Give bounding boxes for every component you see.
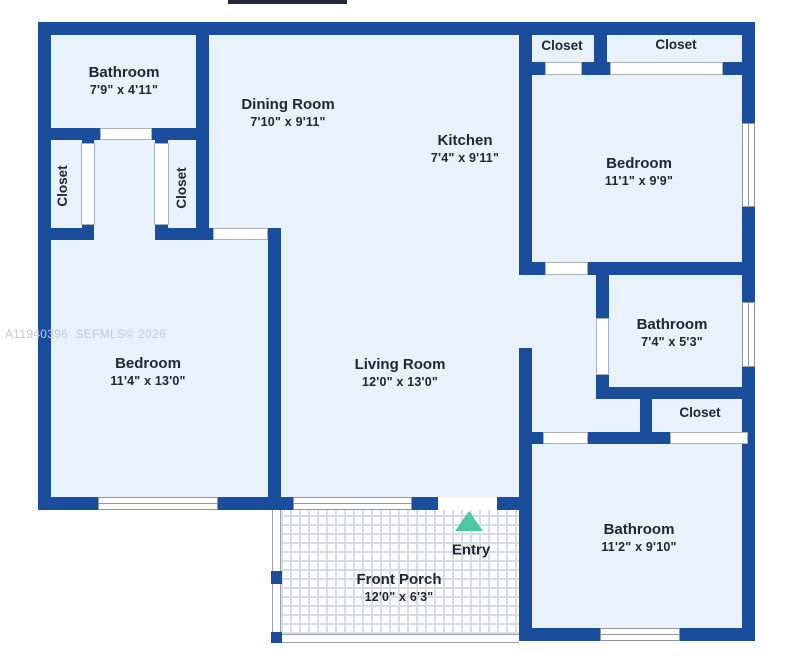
room-label-closet-top-small: Closet [541,38,582,54]
room-label-dining-room: Dining Room 7'10" x 9'11" [241,95,334,131]
door-opening [100,128,152,140]
room-dimensions: 7'10" x 9'11" [241,114,334,131]
room-label-bathroom-bottom: Bathroom 11'2" x 9'10" [601,520,676,556]
room-dimensions: 11'2" x 9'10" [601,539,676,556]
room-name: Closet [174,167,190,208]
entry-arrow-icon [455,511,483,531]
room-name: Closet [541,38,582,54]
room-name: Dining Room [241,95,334,114]
room-label-kitchen: Kitchen 7'4" x 9'11" [431,131,499,167]
window [742,123,755,207]
room-name: Closet [55,165,71,206]
wall [38,228,94,240]
room-label-living-room: Living Room 12'0" x 13'0" [355,355,446,391]
window [600,628,680,641]
door-opening [596,318,609,375]
room-dimensions: 12'0" x 13'0" [355,374,446,391]
top-crop-bar [228,0,347,4]
room-name: Bedroom [110,354,185,373]
porch-post [271,571,282,584]
room-dimensions: 11'1" x 9'9" [605,173,673,190]
room-dimensions: 7'4" x 9'11" [431,150,499,167]
wall [519,22,532,275]
entry-door-opening [438,497,497,510]
room-label-closet-top-large: Closet [655,37,696,53]
room-label-closet-middle: Closet [679,405,720,421]
window [742,302,755,367]
room-name: Living Room [355,355,446,374]
room-name: Bathroom [601,520,676,539]
room-dimensions: 12'0" x 6'3" [357,589,442,606]
door-opening [81,143,95,225]
door-opening [213,228,268,240]
room-label-closet-left-inner: Closet [174,167,190,208]
window [98,497,218,510]
entry-text: Entry [452,542,490,559]
wall [596,387,755,399]
room-name: Bathroom [89,63,160,82]
porch-post [271,632,282,643]
room-dimensions: 7'4" x 5'3" [637,334,708,351]
entry-label: Entry [452,542,490,559]
room-name: Bathroom [637,315,708,334]
room-name: Front Porch [357,570,442,589]
room-dimensions: 7'9" x 4'11" [89,82,160,99]
wall-left [38,22,51,510]
porch-bottom-railing [272,634,519,643]
room-label-bathroom-top-left: Bathroom 7'9" x 4'11" [89,63,160,99]
wall [519,348,532,641]
door-opening [545,62,582,75]
door-opening [545,262,588,275]
watermark: A11940396 SEFMLS© 2026 [5,327,166,341]
room-label-bedroom-right: Bedroom 11'1" x 9'9" [605,154,673,190]
room-name: Bedroom [605,154,673,173]
room-label-front-porch: Front Porch 12'0" x 6'3" [357,570,442,606]
room-name: Kitchen [431,131,499,150]
door-opening [610,62,723,75]
door-opening [670,432,748,444]
room-name: Closet [679,405,720,421]
room-label-closet-left-outer: Closet [55,165,71,206]
room-name: Closet [655,37,696,53]
room-label-bedroom-left: Bedroom 11'4" x 13'0" [110,354,185,390]
wall-top [38,22,755,35]
room-dimensions: 11'4" x 13'0" [110,373,185,390]
door-opening [154,143,169,225]
door-opening [543,432,588,444]
floor-plan: Bathroom 7'9" x 4'11" Dining Room 7'10" … [0,0,800,669]
window [293,497,412,510]
room-label-bathroom-middle: Bathroom 7'4" x 5'3" [637,315,708,351]
wall [268,228,281,510]
